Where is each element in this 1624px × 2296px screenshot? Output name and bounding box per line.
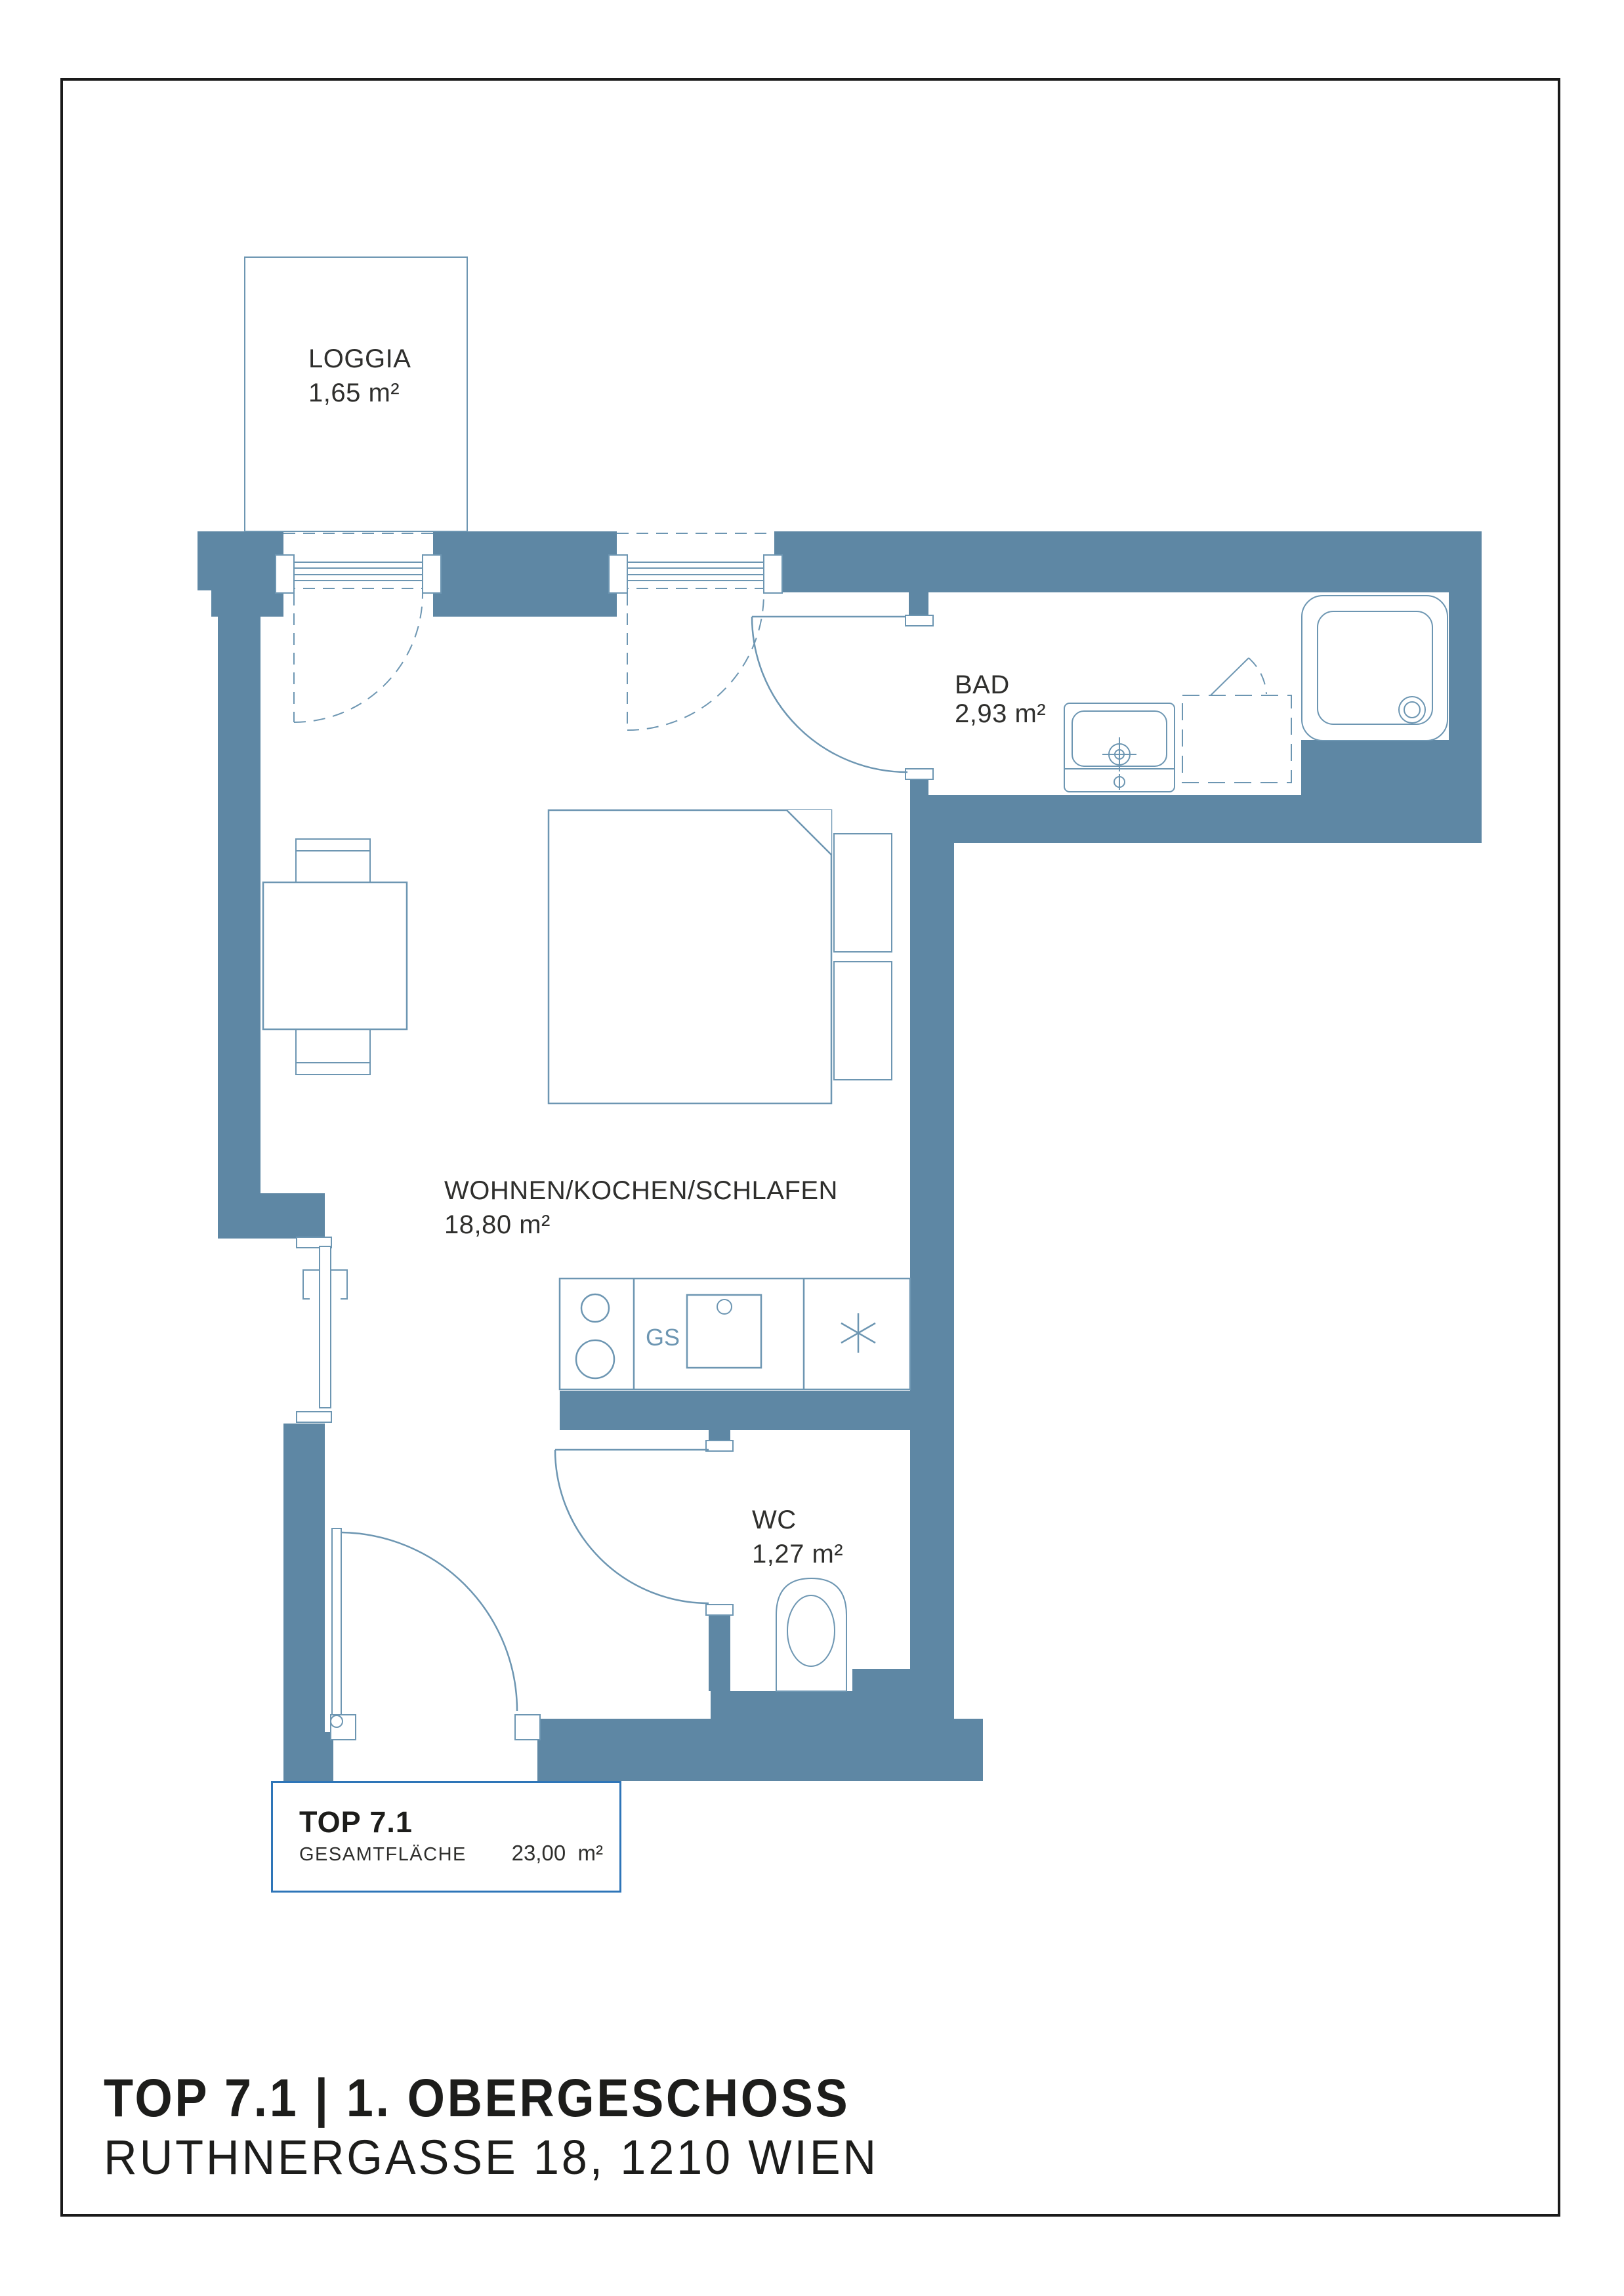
wall-segment bbox=[852, 1669, 910, 1691]
wall-segment bbox=[709, 1614, 730, 1691]
kitchen: GS bbox=[560, 1279, 910, 1389]
side-window-door bbox=[297, 1237, 347, 1422]
door-handle-icon bbox=[331, 1270, 347, 1299]
window-jamb bbox=[276, 555, 294, 593]
window-glazing bbox=[294, 562, 423, 581]
plan-address: RUTHNERGASSE 18, 1210 WIEN bbox=[104, 2129, 879, 2185]
wc-door-swing-arc bbox=[555, 1450, 709, 1603]
wall-segment bbox=[537, 1719, 983, 1781]
wohnen-label-group: WOHNEN/KOCHEN/SCHLAFEN 18,80 m² bbox=[444, 1176, 838, 1239]
wall-segment bbox=[910, 795, 954, 1729]
dining-table bbox=[263, 882, 407, 1029]
window-jamb bbox=[609, 555, 627, 593]
unit-number: TOP 7.1 bbox=[299, 1805, 619, 1839]
wc-area: 1,27 m² bbox=[752, 1540, 843, 1568]
door-jamb bbox=[515, 1715, 540, 1740]
nightstand bbox=[834, 962, 892, 1080]
loggia-area: 1,65 m² bbox=[308, 379, 400, 407]
door-jamb bbox=[706, 1605, 733, 1615]
wall-segment bbox=[560, 1391, 910, 1430]
toilet bbox=[776, 1578, 846, 1691]
bathroom-sink bbox=[1064, 703, 1175, 792]
side-door-leaf bbox=[320, 1246, 331, 1408]
title-block: TOP 7.1 GESAMTFLÄCHE 23,00 m² bbox=[271, 1781, 621, 1893]
wall-segment bbox=[218, 1193, 325, 1239]
plan-title: TOP 7.1 | 1. OBERGESCHOSS bbox=[104, 2068, 850, 2129]
chair bbox=[296, 1029, 370, 1075]
cooktop-burner-icon bbox=[576, 1340, 614, 1378]
bad-label: BAD bbox=[955, 670, 1010, 699]
balcony-door-swing-arc bbox=[627, 594, 764, 730]
kitchen-tap-icon bbox=[717, 1300, 732, 1314]
wall-segment bbox=[1301, 740, 1449, 798]
door-jamb bbox=[906, 615, 933, 626]
bed bbox=[549, 810, 831, 1103]
window-jamb bbox=[764, 555, 782, 593]
nightstand bbox=[834, 834, 892, 952]
door-jamb bbox=[706, 1441, 733, 1451]
wall-segment bbox=[283, 1732, 333, 1781]
freezer-asterisk-icon bbox=[841, 1313, 875, 1353]
loggia-label: LOGGIA bbox=[308, 344, 411, 373]
floor-plan: LOGGIA 1,65 m² bbox=[0, 0, 1624, 2296]
appliance-door-leaf bbox=[1211, 658, 1249, 695]
entry-door-swing-arc bbox=[341, 1532, 517, 1711]
total-area-label: GESAMTFLÄCHE bbox=[299, 1844, 467, 1866]
wall-segment bbox=[909, 592, 928, 617]
chair bbox=[296, 839, 370, 882]
wc: WC 1,27 m² bbox=[555, 1441, 846, 1691]
bad-area: 2,93 m² bbox=[955, 699, 1046, 728]
furniture bbox=[263, 810, 892, 1103]
wall-segment bbox=[433, 531, 617, 617]
door-jamb bbox=[297, 1412, 331, 1422]
dishwasher-label: GS bbox=[646, 1324, 680, 1351]
wall-segment bbox=[910, 795, 1482, 843]
kitchen-sink bbox=[687, 1295, 761, 1368]
wall-segment bbox=[283, 1424, 325, 1732]
window-jamb bbox=[423, 555, 441, 593]
door-jamb bbox=[906, 769, 933, 779]
shower-tray bbox=[1302, 596, 1447, 741]
total-area-value: 23,00 m² bbox=[512, 1841, 603, 1866]
bath-door-swing-arc bbox=[752, 617, 907, 772]
washing-machine bbox=[1182, 658, 1291, 783]
loggia: LOGGIA 1,65 m² bbox=[245, 257, 467, 531]
wc-label: WC bbox=[752, 1506, 797, 1534]
cooktop-burner-icon bbox=[581, 1294, 609, 1322]
wohnen-area: 18,80 m² bbox=[444, 1210, 551, 1239]
wall-segment bbox=[774, 531, 1482, 592]
entry-door-leaf bbox=[332, 1528, 341, 1715]
washing-machine-outline bbox=[1182, 695, 1291, 783]
door-handle-icon bbox=[303, 1270, 320, 1299]
shower bbox=[1302, 596, 1447, 741]
appliance-door-arc bbox=[1249, 658, 1266, 694]
wall-segment bbox=[198, 531, 283, 590]
entry-door bbox=[331, 1528, 540, 1740]
wohnen-label: WOHNEN/KOCHEN/SCHLAFEN bbox=[444, 1176, 838, 1205]
balcony-door-swing-arc bbox=[294, 594, 423, 722]
window-glazing bbox=[627, 562, 764, 581]
wall-segment bbox=[218, 589, 260, 1193]
